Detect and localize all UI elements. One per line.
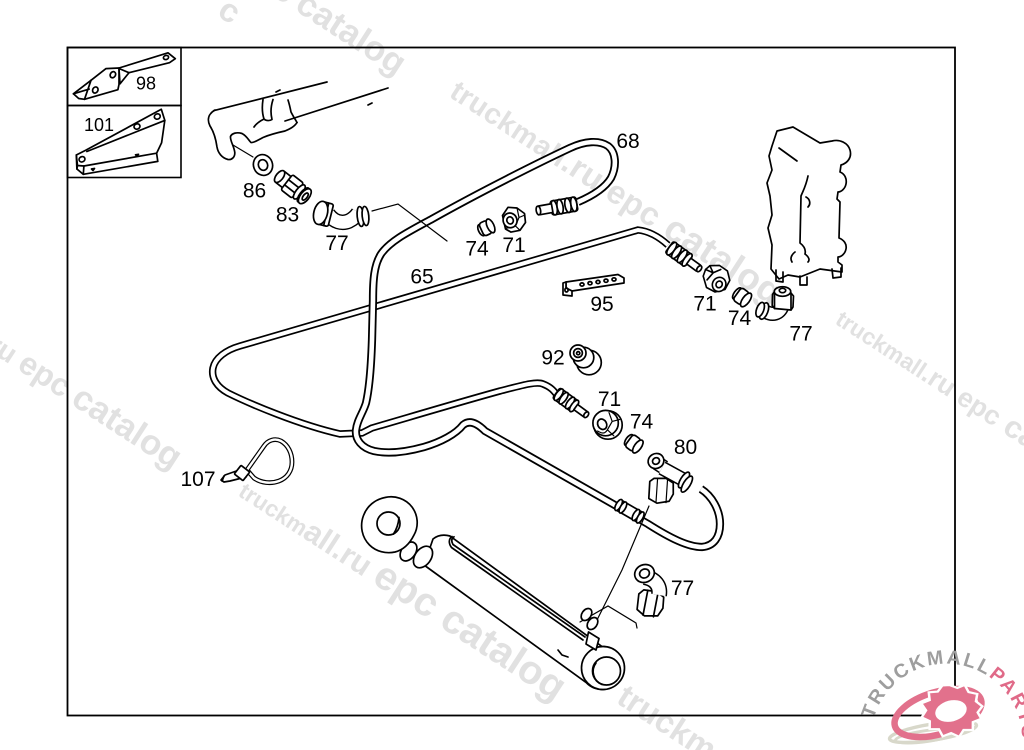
svg-text:74: 74 xyxy=(728,307,752,330)
svg-text:83: 83 xyxy=(276,204,299,227)
svg-text:71: 71 xyxy=(502,234,525,257)
svg-text:77: 77 xyxy=(671,577,694,600)
svg-text:107: 107 xyxy=(180,468,215,491)
svg-text:95: 95 xyxy=(590,293,613,316)
svg-text:65: 65 xyxy=(410,266,433,289)
svg-text:77: 77 xyxy=(325,232,348,255)
svg-text:68: 68 xyxy=(616,130,639,153)
svg-text:74: 74 xyxy=(465,238,489,261)
svg-text:71: 71 xyxy=(693,293,716,316)
svg-text:77: 77 xyxy=(789,323,812,346)
svg-text:86: 86 xyxy=(243,180,266,203)
svg-text:80: 80 xyxy=(674,436,697,459)
svg-text:92: 92 xyxy=(541,347,564,370)
svg-text:98: 98 xyxy=(136,74,156,94)
svg-text:101: 101 xyxy=(84,115,114,135)
svg-text:71: 71 xyxy=(598,388,621,411)
svg-text:74: 74 xyxy=(630,411,654,434)
